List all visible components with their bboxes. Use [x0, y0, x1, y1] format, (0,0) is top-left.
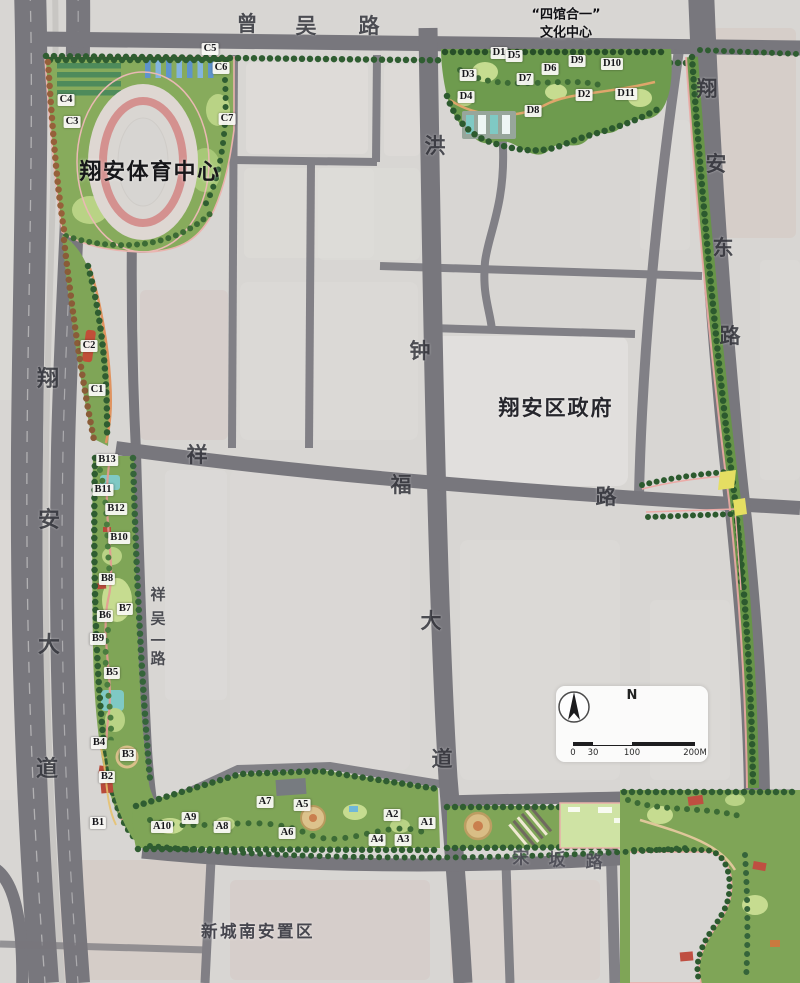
yellow-patch-south	[733, 498, 747, 516]
scalebar-segment-2	[632, 742, 695, 746]
scalebar-line	[593, 745, 632, 747]
scalebar-segment-1	[573, 742, 593, 746]
scalebar-tick-2: 100	[624, 748, 640, 758]
scalebar-tick-3: 200M	[683, 748, 707, 758]
compass-icon	[556, 686, 592, 726]
d-park-courts	[462, 111, 516, 139]
scale-compass-box: N 030100200M	[556, 686, 708, 762]
yellow-patch-north	[718, 470, 736, 490]
scalebar-tick-1: 30	[588, 748, 599, 758]
a-corridor-building	[275, 778, 306, 796]
planning-map: A1A2A3A4A5A6A7A8A9A10B1B2B3B4B5B6B7B8B9B…	[0, 0, 800, 983]
b5-pool	[101, 690, 124, 711]
map-illustration	[0, 0, 800, 983]
corner-park	[620, 790, 800, 983]
sports-center-park	[45, 57, 234, 252]
scalebar-tick-0: 0	[570, 748, 575, 758]
